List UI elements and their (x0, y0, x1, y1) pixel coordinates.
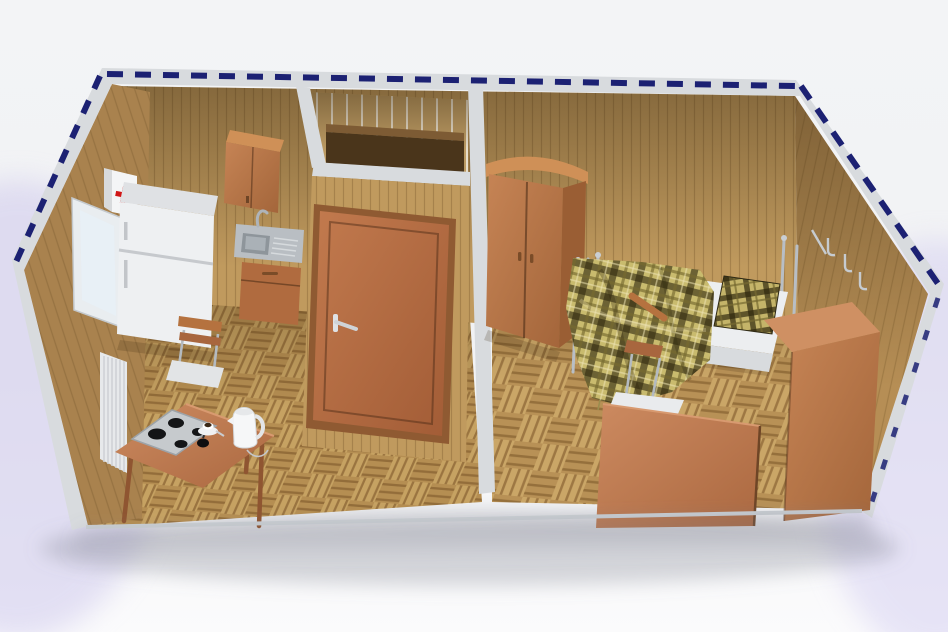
wardrobe-handle-right (530, 254, 533, 263)
refrigerator (117, 182, 218, 362)
small-pot (197, 439, 209, 448)
burner-4 (175, 440, 188, 448)
burner-3 (148, 429, 166, 440)
bathroom (296, 86, 470, 462)
first-aid-side (104, 168, 112, 212)
freezer-handle (124, 222, 128, 240)
render-canvas (0, 0, 948, 632)
bathroom-door (306, 204, 456, 444)
sink-bowl-inner (245, 236, 266, 251)
fridge-handle (124, 260, 128, 288)
tall-cabinet-front (784, 332, 880, 521)
container-house-render (0, 0, 948, 632)
window (72, 198, 124, 328)
wall-cabinet-handle (246, 196, 249, 203)
coffee (204, 423, 211, 427)
wardrobe-handle-left (518, 252, 521, 261)
kettle-lid (235, 409, 253, 416)
desk (596, 404, 760, 528)
bed-knob-2 (595, 252, 601, 258)
window-glass-sheen (80, 210, 116, 316)
burner-1 (168, 418, 184, 428)
sink-drawer-handle (262, 272, 278, 275)
wall-cabinet (224, 130, 284, 213)
sink-base-cabinet (239, 262, 301, 325)
bed-knob-3 (781, 235, 787, 241)
